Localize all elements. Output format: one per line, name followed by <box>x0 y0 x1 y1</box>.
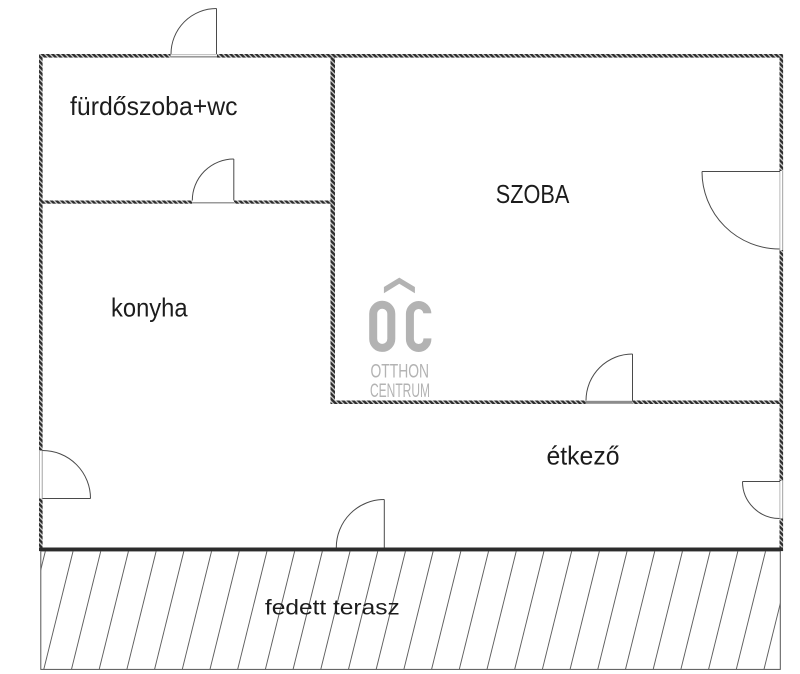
svg-text:CENTRUM: CENTRUM <box>370 381 430 402</box>
svg-text:fedett terasz: fedett terasz <box>265 597 400 620</box>
svg-text:konyha: konyha <box>111 293 188 323</box>
svg-text:SZOBA: SZOBA <box>496 179 570 209</box>
svg-text:OTTHON: OTTHON <box>371 362 430 383</box>
svg-text:étkező: étkező <box>547 440 620 470</box>
svg-text:fürdőszoba+wc: fürdőszoba+wc <box>70 91 238 121</box>
